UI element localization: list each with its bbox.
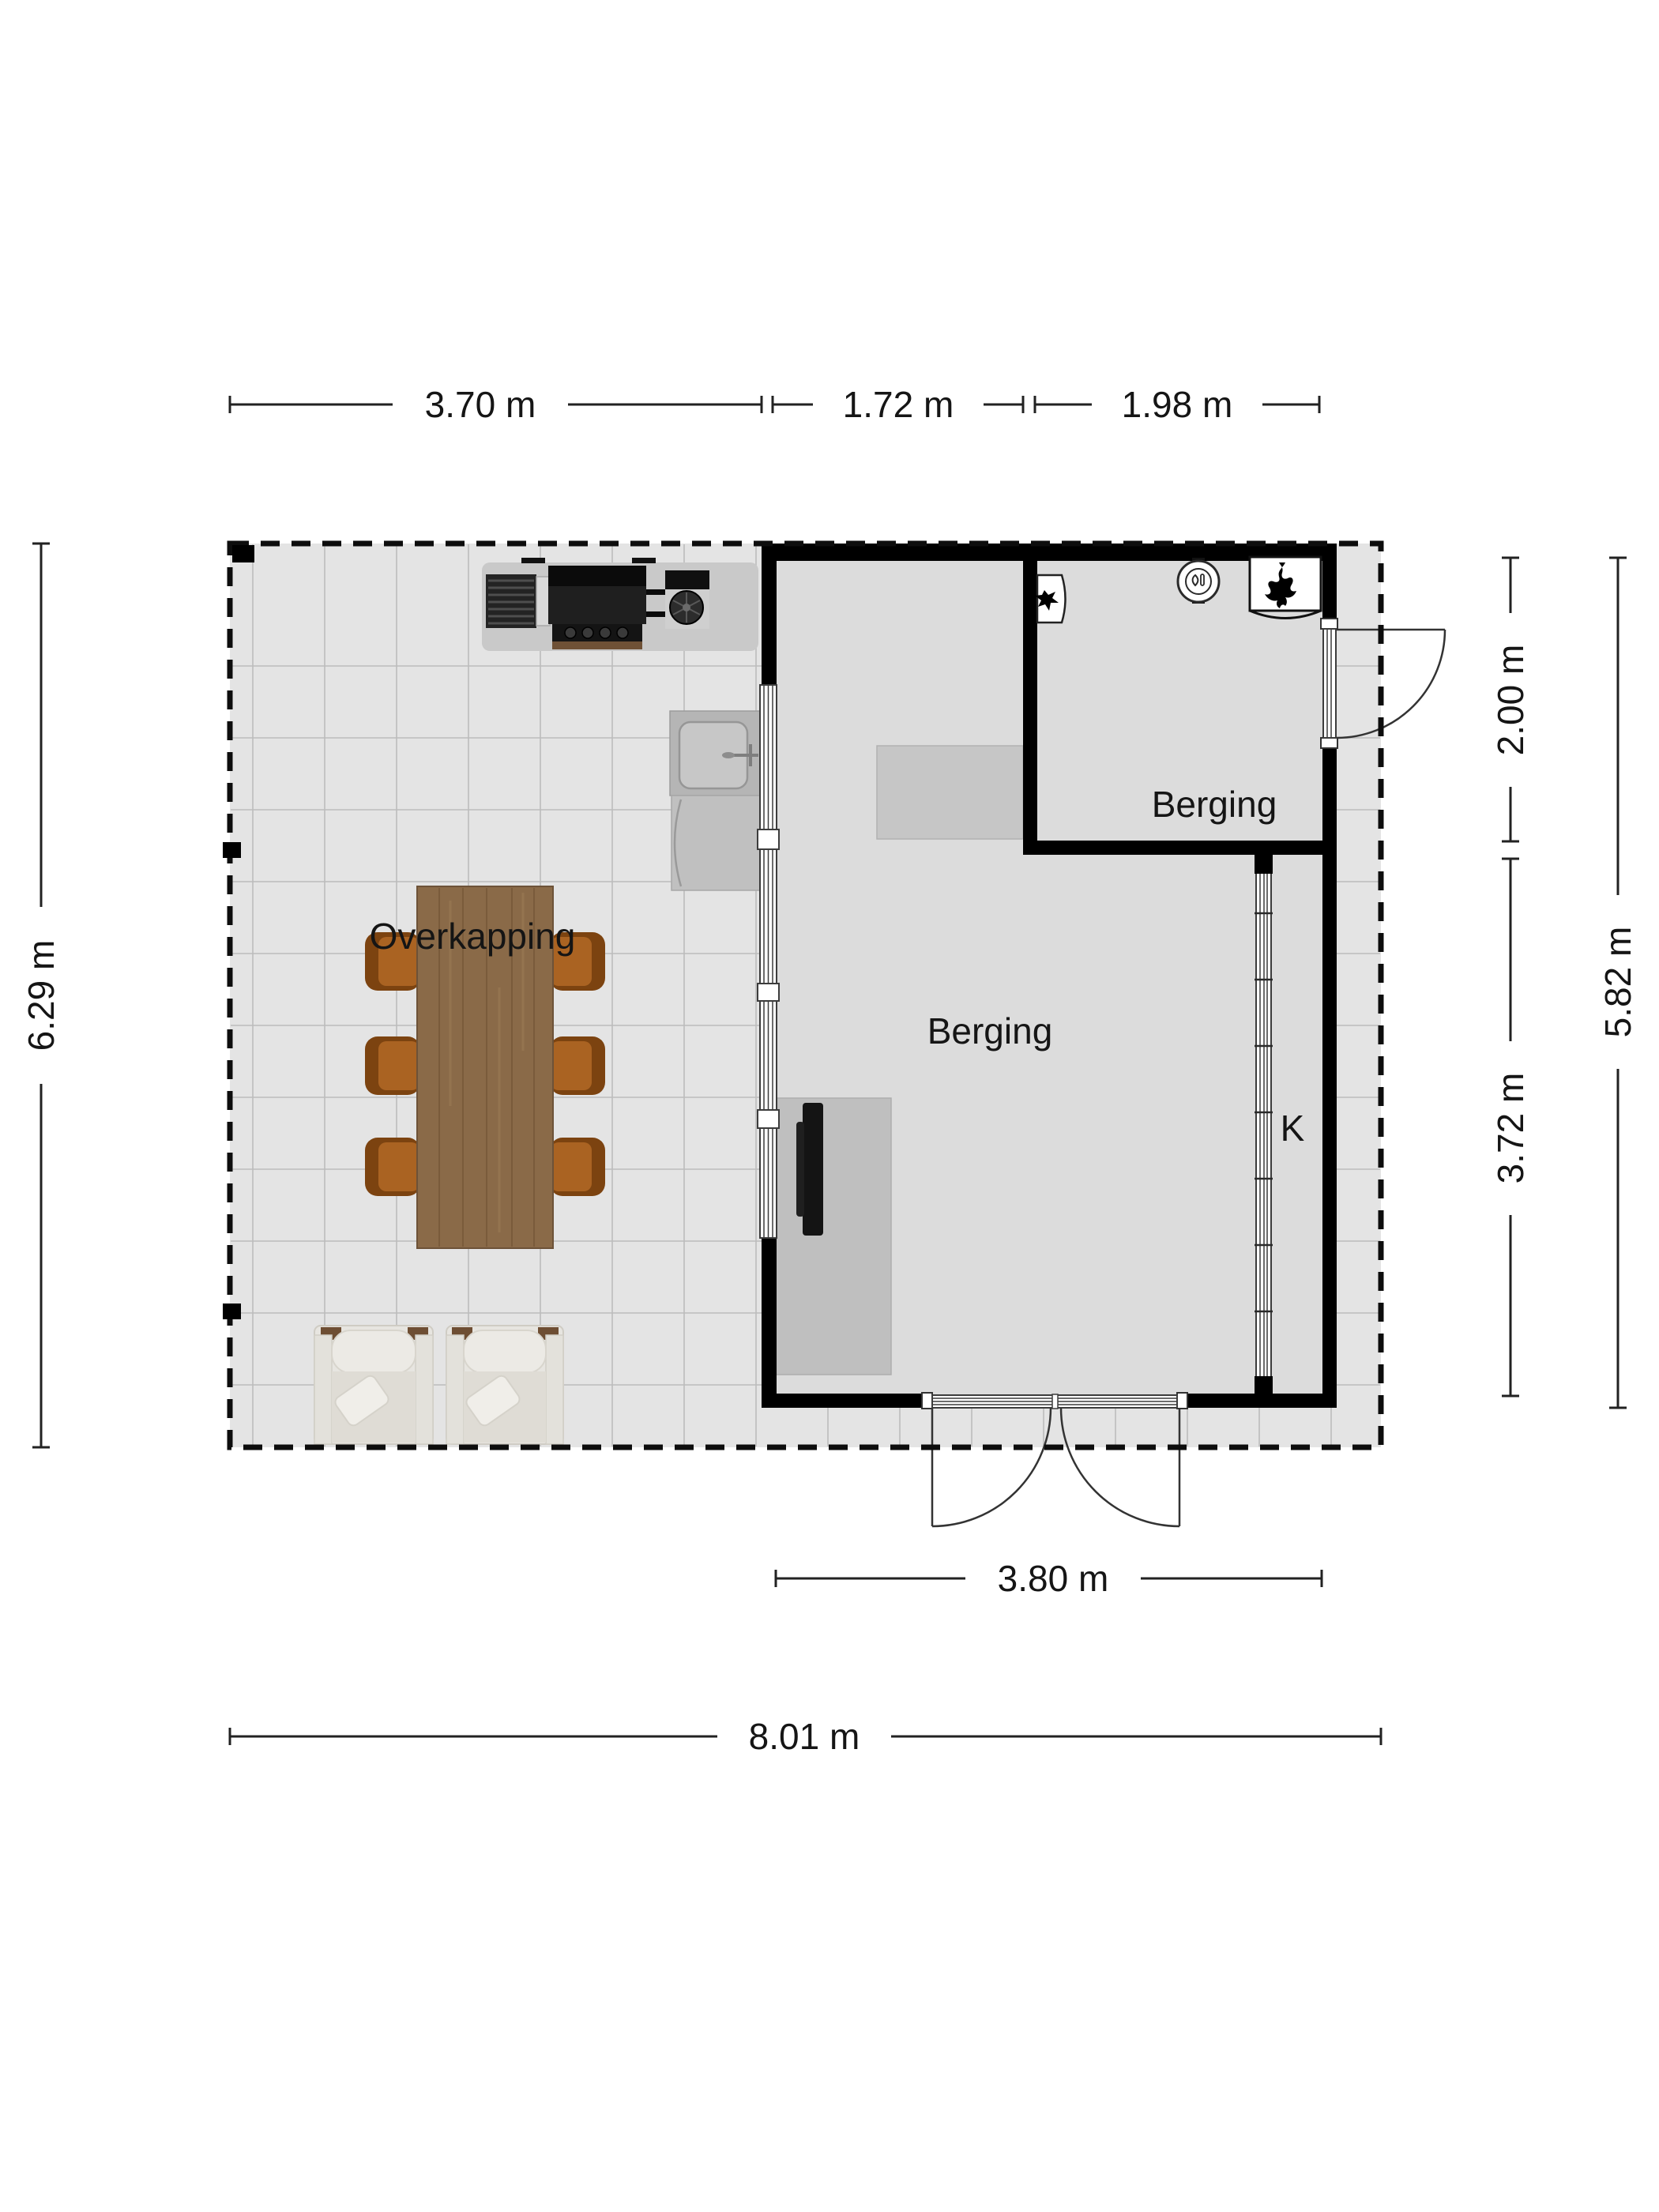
storage-cabinet [776, 1098, 891, 1375]
cabinet-dark-panel [803, 1103, 823, 1236]
dim-label-380: 3.80 m [998, 1558, 1109, 1599]
dim-label-582: 5.82 m [1597, 927, 1638, 1038]
door-sill [1321, 619, 1337, 629]
wall-left-upper [762, 544, 777, 685]
door-sill [1177, 1393, 1187, 1409]
room-label-closet: K [1281, 1108, 1305, 1149]
wall-room-bottom [1023, 841, 1337, 855]
dim-label-629: 6.29 m [21, 940, 62, 1051]
window-strip-left [758, 685, 779, 1238]
dim-label-370: 3.70 m [425, 384, 536, 425]
dining-chair [365, 1138, 420, 1196]
bbq-knob [582, 627, 593, 638]
dim-label-198: 1.98 m [1122, 384, 1233, 425]
canopy-post [223, 1303, 241, 1319]
door-sill [1321, 738, 1337, 748]
bbq-knob [565, 627, 576, 638]
wall-bottom-right [1187, 1394, 1337, 1408]
wall-divider [1023, 561, 1037, 841]
stove [1250, 557, 1321, 619]
wall-left-lower [762, 1238, 777, 1408]
round-grill-pan [670, 591, 703, 624]
canopy-post [223, 842, 241, 858]
room-label-berging-top: Berging [1152, 784, 1277, 825]
dim-label-200: 2.00 m [1490, 645, 1531, 756]
bbq-side-table [665, 570, 709, 589]
bbq-grill [482, 558, 758, 651]
lounge-chair [314, 1326, 433, 1444]
dining-chair [550, 1138, 605, 1196]
window-mullion [758, 1110, 779, 1128]
room-label-berging-main: Berging [927, 1010, 1053, 1051]
dining-chair [365, 1036, 420, 1095]
sink [670, 711, 760, 890]
wall-unit [1035, 575, 1066, 623]
floor-plan-canvas: Overkapping Berging Berging K 3.70 m 1.7… [0, 0, 1659, 2212]
dim-label-172: 1.72 m [843, 384, 954, 425]
wall-bottom-left [762, 1394, 922, 1408]
wall-right-upper [1322, 544, 1337, 619]
closet-doors [1255, 855, 1273, 1395]
bbq-knob [600, 627, 611, 638]
door-sill [922, 1393, 932, 1409]
workbench [877, 746, 1023, 839]
dining-chair [550, 1036, 605, 1095]
room-label-overkapping: Overkapping [370, 916, 576, 957]
bbq-hood [548, 566, 646, 586]
canopy-post [232, 545, 254, 562]
window-mullion [758, 829, 779, 849]
lounge-chair [446, 1326, 563, 1444]
floor-plan-page: Overkapping Berging Berging K 3.70 m 1.7… [0, 0, 1659, 2212]
dim-label-372: 3.72 m [1490, 1073, 1531, 1184]
window-mullion [758, 984, 779, 1001]
dim-label-801: 8.01 m [749, 1716, 860, 1757]
bbq-knob [617, 627, 628, 638]
